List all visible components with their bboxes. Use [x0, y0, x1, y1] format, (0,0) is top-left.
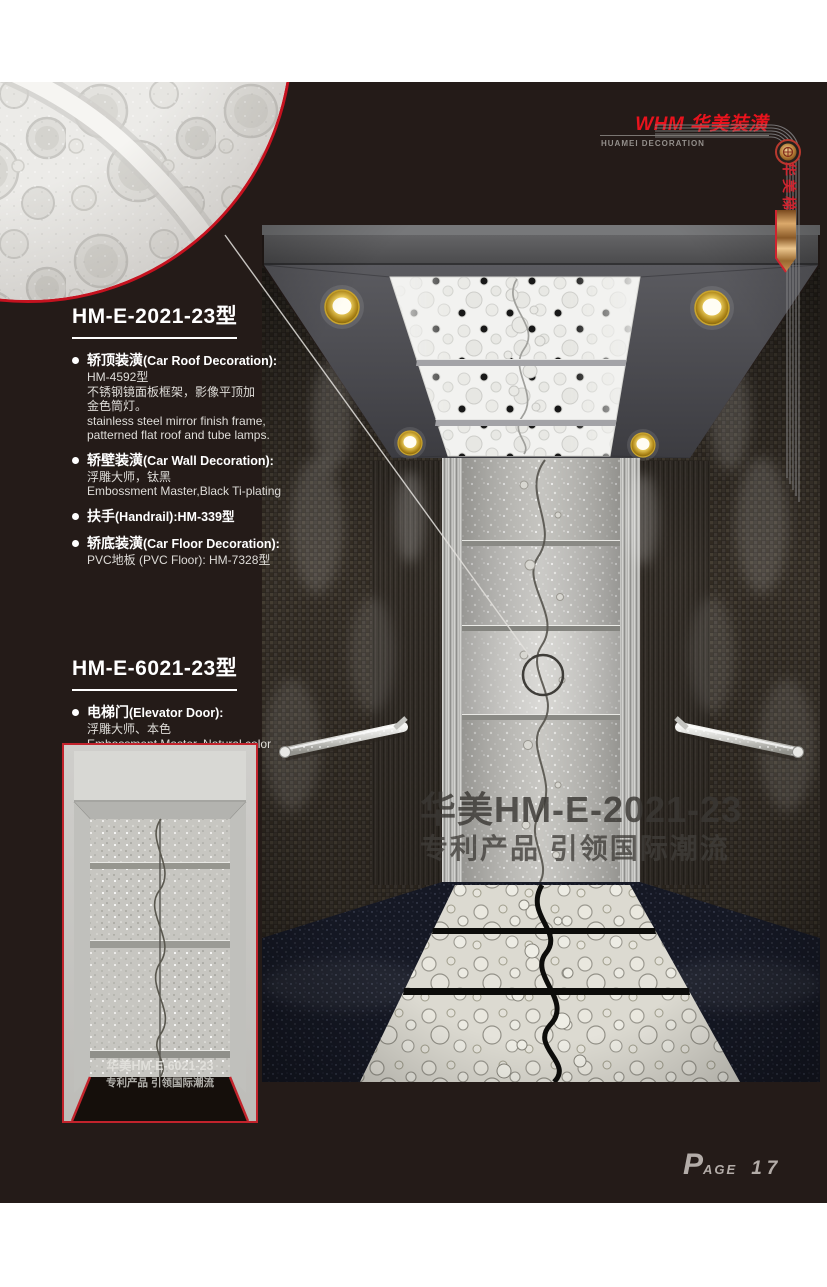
- spec-title-en: (Elevator Door):: [129, 706, 223, 720]
- main-watermark-line1: 华美HM-E-2021-23: [420, 781, 742, 833]
- bullet-icon: [72, 709, 79, 716]
- spec-line: HM-4592型: [87, 370, 277, 385]
- bullet-icon: [72, 457, 79, 464]
- spec-item-wall: 轿壁装潢(Car Wall Decoration): 浮雕大师，钛黑 Embos…: [72, 452, 277, 499]
- spec-line: stainless steel mirror finish frame,: [87, 414, 277, 429]
- catalog-page-panel: HM-E-2021-23型 轿顶装潢(Car Roof Decoration):…: [0, 82, 827, 1203]
- spec-title-zh: 电梯门: [87, 704, 129, 720]
- spec-title-en: (Car Floor Decoration):: [143, 537, 280, 551]
- page-word-rest: AGE: [703, 1162, 737, 1177]
- spec-line: 不锈钢镜面板框架，影像平顶加: [87, 385, 277, 400]
- spec-item-handrail: 扶手(Handrail):HM-339型: [72, 508, 277, 526]
- bullet-icon: [72, 357, 79, 364]
- door-header-panel: [74, 751, 246, 801]
- huamei-emblem-icon: [776, 140, 800, 164]
- spec-line: patterned flat roof and tube lamps.: [87, 428, 277, 443]
- door-leaves: [90, 819, 230, 1077]
- panel-texture-detail-circle: [0, 82, 293, 303]
- door-watermark-line1: 华美HM-E-6021-23: [64, 1055, 256, 1074]
- spec-line: 浮雕大师，钛黑: [87, 470, 277, 485]
- spec-title-zh: 扶手: [87, 508, 115, 524]
- page-number: PAGE17: [683, 1148, 782, 1182]
- spec-item-roof: 轿顶装潢(Car Roof Decoration): HM-4592型 不锈钢镜…: [72, 352, 277, 443]
- bullet-icon: [72, 540, 79, 547]
- page-number-value: 17: [751, 1158, 782, 1180]
- bullet-icon: [72, 513, 79, 520]
- spec-item-floor: 轿底装潢(Car Floor Decoration): PVC地板 (PVC F…: [72, 535, 277, 568]
- bubble-texture-detail: [0, 82, 290, 300]
- spec-title-zh: 轿壁装潢: [87, 452, 143, 468]
- section-heading: HM-E-6021-23型: [72, 652, 237, 691]
- spec-title-en: (Car Wall Decoration):: [143, 454, 274, 468]
- main-watermark-line2: 专利产品 引领国际潮流: [420, 827, 730, 867]
- spec-title-en: (Car Roof Decoration):: [143, 354, 277, 368]
- spec-title-zh: 轿顶装潢: [87, 352, 143, 368]
- spec-line: Embossment Master,Black Ti-plating: [87, 484, 277, 499]
- spec-line: PVC地板 (PVC Floor): HM-7328型: [87, 553, 277, 568]
- spec-line: 浮雕大师、本色: [87, 722, 277, 737]
- banner-vertical-text: 华美梯: [778, 162, 799, 222]
- spec-line: 金色筒灯。: [87, 399, 277, 414]
- spec-title-zh: 轿底装潢: [87, 535, 143, 551]
- spec-section-car: HM-E-2021-23型 轿顶装潢(Car Roof Decoration):…: [72, 300, 277, 576]
- page-word-initial: P: [683, 1148, 703, 1182]
- section-heading: HM-E-2021-23型: [72, 300, 237, 339]
- door-watermark-line2: 专利产品 引领国际潮流: [64, 1075, 256, 1090]
- elevator-door-thumbnail: 华美HM-E-6021-23 专利产品 引领国际潮流: [62, 743, 258, 1123]
- spec-title-en: (Handrail):HM-339型: [115, 510, 234, 524]
